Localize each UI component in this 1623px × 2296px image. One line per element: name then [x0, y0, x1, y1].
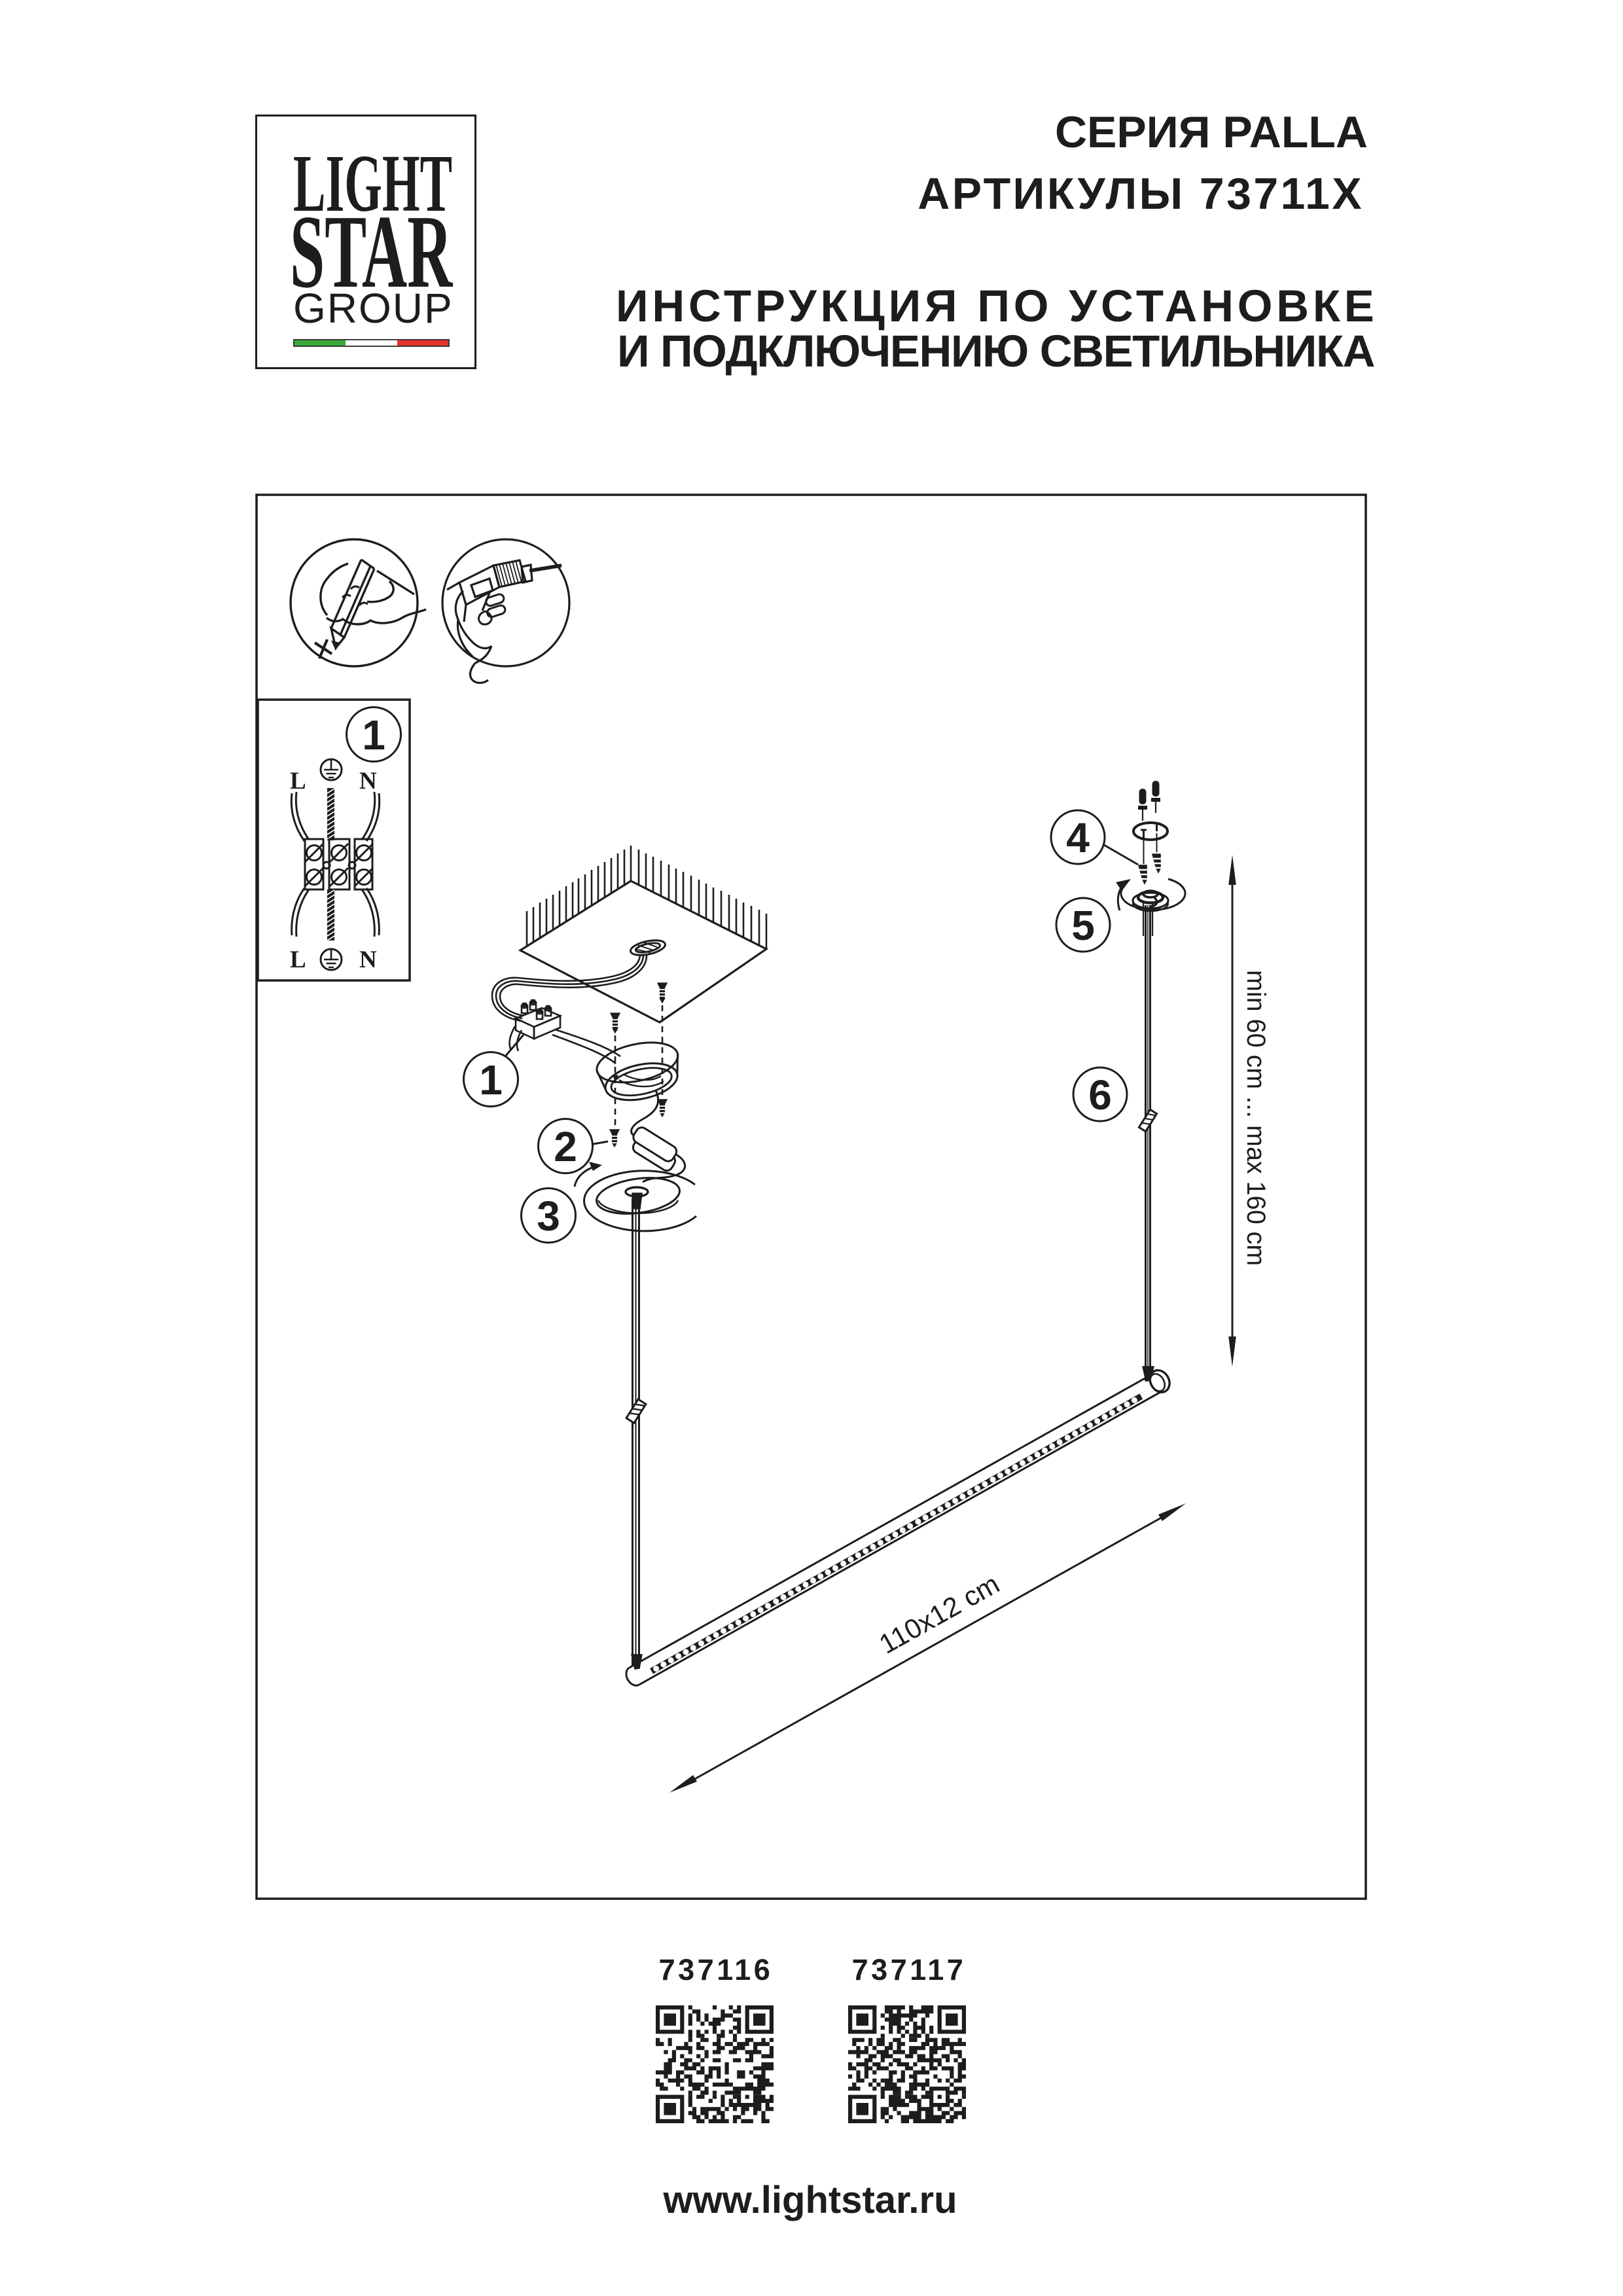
svg-text:L: L: [290, 946, 306, 973]
svg-text:1: 1: [362, 711, 385, 759]
svg-text:6: 6: [1088, 1071, 1112, 1119]
svg-text:2: 2: [554, 1123, 577, 1170]
svg-text:N: N: [359, 946, 377, 973]
svg-text:L: L: [290, 768, 306, 795]
svg-text:110x12 cm: 110x12 cm: [874, 1568, 1004, 1660]
svg-text:4: 4: [1066, 814, 1090, 861]
svg-text:1: 1: [479, 1056, 503, 1103]
svg-text:3: 3: [537, 1193, 560, 1240]
svg-text:N: N: [359, 768, 377, 795]
svg-text:5: 5: [1071, 902, 1095, 949]
svg-text:min 60 cm ... max 160 cm: min 60 cm ... max 160 cm: [1241, 970, 1270, 1266]
